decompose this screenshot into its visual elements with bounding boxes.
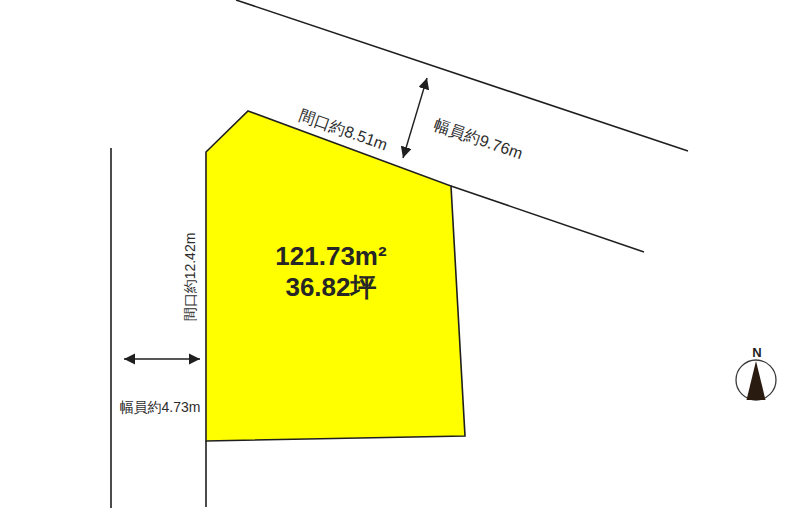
land-plot-diagram: 間口約8.51m 幅員約9.76m 間口約12.42m 幅員約4.73m 121… [0,0,800,532]
frontage-left-label: 間口約12.42m [182,233,200,322]
area-tsubo-label: 36.82坪 [275,272,386,303]
area-m2-label: 121.73m² [275,241,386,272]
compass [736,360,776,400]
compass-north-label: N [752,345,761,360]
plot-area-label: 121.73m² 36.82坪 [275,241,386,303]
road-width-top-arrow [403,78,427,158]
road-width-left-label: 幅員約4.73m [120,399,201,417]
plot-drawing [0,0,800,532]
road-edge-lower-line [451,186,644,252]
